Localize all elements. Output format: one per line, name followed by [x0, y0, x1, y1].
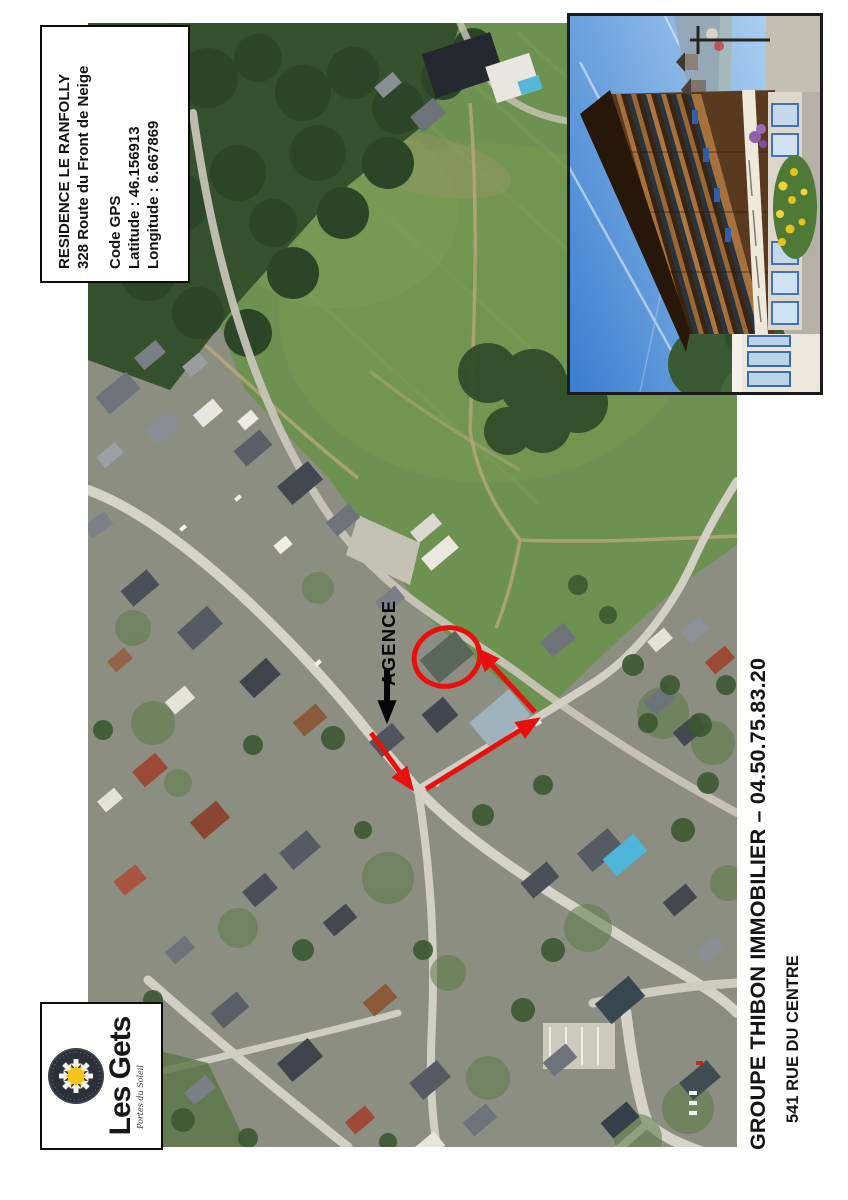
- les-gets-logo-box: Les Gets Portes du Soleil: [40, 1002, 163, 1150]
- residence-address: 328 Route du Front de Neige: [74, 27, 93, 269]
- pavement-light: [766, 16, 820, 92]
- residence-photo-art: [570, 16, 820, 392]
- left-storefront: [732, 334, 820, 392]
- les-gets-wordmark: Les Gets: [106, 1017, 136, 1136]
- residence-photo: [567, 13, 823, 395]
- gps-heading: Code GPS: [106, 27, 125, 269]
- residence-title: RESIDENCE LE RANFOLLY: [55, 27, 74, 269]
- gps-longitude: Longitude : 6.667869: [144, 27, 163, 269]
- les-gets-tagline: Portes du Soleil: [136, 1065, 145, 1129]
- les-gets-emblem-icon: [47, 1047, 105, 1105]
- agency-name-phone: GROUPE THIBON IMMOBILIER – 04.50.75.83.2…: [742, 640, 771, 1150]
- agency-street: 541 RUE DU CENTRE: [784, 640, 803, 1150]
- spacer: [93, 27, 106, 269]
- residence-info-box: RESIDENCE LE RANFOLLY 328 Route du Front…: [40, 25, 190, 283]
- agence-label: AGENCE: [378, 600, 399, 686]
- location-sheet-page: AGENCE RESIDENCE LE RANFOLLY 328 Route d…: [0, 0, 848, 1200]
- gps-latitude: Latitude : 46.156913: [125, 27, 144, 269]
- agency-contact: GROUPE THIBON IMMOBILIER – 04.50.75.83.2…: [742, 640, 820, 1150]
